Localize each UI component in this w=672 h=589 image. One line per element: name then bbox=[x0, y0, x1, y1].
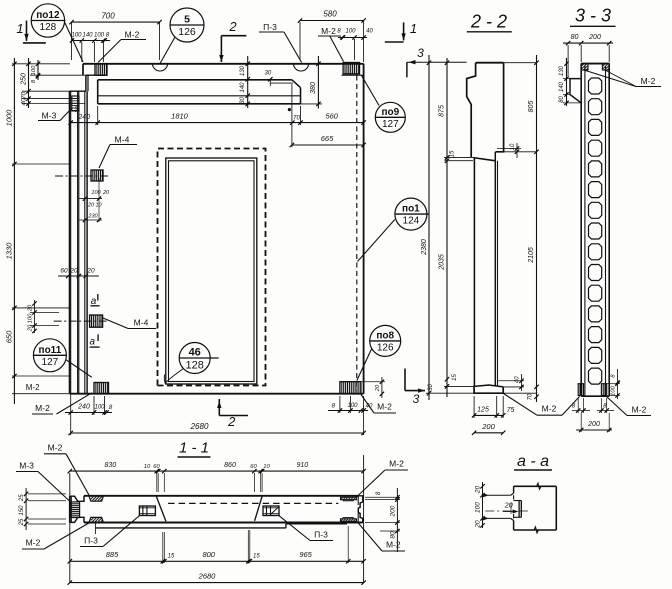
svg-text:M-4: M-4 bbox=[115, 135, 130, 145]
svg-text:70: 70 bbox=[528, 393, 534, 400]
svg-text:П-3: П-3 bbox=[314, 530, 328, 540]
svg-text:a - a: a - a bbox=[517, 453, 549, 470]
svg-text:10: 10 bbox=[263, 464, 270, 470]
svg-text:140: 140 bbox=[559, 81, 565, 92]
svg-text:60: 60 bbox=[250, 464, 257, 470]
svg-text:25: 25 bbox=[19, 518, 25, 526]
svg-text:100: 100 bbox=[345, 29, 356, 35]
svg-text:80: 80 bbox=[559, 96, 565, 103]
svg-text:3 - 3: 3 - 3 bbox=[575, 6, 611, 26]
svg-text:650: 650 bbox=[5, 330, 14, 343]
svg-text:M-4: M-4 bbox=[134, 318, 149, 328]
svg-text:40: 40 bbox=[514, 376, 520, 383]
svg-text:126: 126 bbox=[178, 26, 196, 38]
svg-text:2 - 2: 2 - 2 bbox=[470, 12, 507, 32]
svg-text:M-2: M-2 bbox=[35, 403, 50, 413]
svg-text:700: 700 bbox=[101, 12, 115, 21]
svg-text:15: 15 bbox=[253, 553, 260, 559]
svg-text:70: 70 bbox=[21, 92, 28, 100]
svg-text:M-2: M-2 bbox=[26, 538, 41, 548]
svg-text:1000: 1000 bbox=[5, 109, 14, 127]
svg-text:130: 130 bbox=[559, 65, 565, 76]
svg-text:100: 100 bbox=[475, 502, 482, 513]
svg-text:100: 100 bbox=[31, 65, 37, 75]
svg-text:46: 46 bbox=[189, 347, 201, 359]
svg-text:20: 20 bbox=[475, 486, 482, 495]
svg-text:15: 15 bbox=[452, 374, 458, 381]
svg-text:240: 240 bbox=[77, 404, 90, 411]
svg-text:15: 15 bbox=[450, 150, 456, 157]
svg-text:25: 25 bbox=[19, 494, 25, 502]
svg-text:П-3: П-3 bbox=[84, 536, 98, 546]
svg-text:200: 200 bbox=[389, 505, 396, 517]
svg-text:910: 910 bbox=[296, 462, 308, 469]
svg-text:560: 560 bbox=[325, 112, 338, 121]
svg-text:100: 100 bbox=[94, 33, 105, 39]
svg-text:830: 830 bbox=[104, 462, 116, 469]
svg-text:60: 60 bbox=[60, 268, 68, 275]
svg-text:100: 100 bbox=[347, 403, 358, 409]
svg-text:2680: 2680 bbox=[190, 422, 209, 431]
svg-text:30: 30 bbox=[428, 383, 434, 390]
svg-text:M-2: M-2 bbox=[48, 443, 63, 453]
svg-text:10: 10 bbox=[144, 464, 151, 470]
svg-text:M-3: M-3 bbox=[19, 461, 34, 471]
svg-text:150: 150 bbox=[19, 505, 25, 516]
svg-text:M-2: M-2 bbox=[389, 459, 404, 469]
svg-text:80: 80 bbox=[389, 531, 396, 539]
svg-text:100: 100 bbox=[94, 404, 105, 410]
svg-text:3: 3 bbox=[413, 392, 420, 406]
svg-text:10: 10 bbox=[510, 143, 516, 150]
svg-text:5: 5 bbox=[184, 14, 190, 26]
svg-text:30: 30 bbox=[265, 71, 272, 77]
svg-text:по1: по1 bbox=[402, 204, 420, 215]
svg-text:100: 100 bbox=[91, 190, 101, 196]
svg-text:1330: 1330 bbox=[5, 242, 14, 260]
svg-text:126: 126 bbox=[377, 342, 394, 353]
svg-text:M-2: M-2 bbox=[125, 30, 140, 40]
svg-text:580: 580 bbox=[323, 10, 337, 19]
svg-text:860: 860 bbox=[224, 462, 236, 469]
svg-text:a: a bbox=[90, 337, 96, 348]
svg-text:20: 20 bbox=[475, 520, 482, 529]
svg-text:20: 20 bbox=[102, 190, 110, 196]
svg-text:127: 127 bbox=[382, 119, 399, 130]
svg-text:200: 200 bbox=[587, 421, 600, 428]
svg-text:M-2: M-2 bbox=[386, 540, 401, 550]
svg-text:M-3: M-3 bbox=[42, 111, 57, 121]
svg-text:60: 60 bbox=[153, 464, 160, 470]
svg-text:3: 3 bbox=[417, 46, 424, 60]
svg-text:240: 240 bbox=[77, 114, 90, 121]
svg-text:M-2: M-2 bbox=[632, 405, 647, 415]
svg-text:по12: по12 bbox=[36, 10, 60, 21]
svg-text:1: 1 bbox=[410, 21, 417, 36]
svg-text:по8: по8 bbox=[376, 330, 394, 341]
svg-text:124: 124 bbox=[403, 216, 420, 227]
svg-text:1 - 1: 1 - 1 bbox=[179, 440, 209, 457]
svg-text:80: 80 bbox=[571, 34, 579, 41]
svg-text:805: 805 bbox=[528, 101, 535, 113]
svg-text:M-2: M-2 bbox=[641, 76, 656, 86]
svg-text:885: 885 bbox=[106, 550, 119, 559]
svg-text:230: 230 bbox=[87, 214, 98, 220]
svg-text:30: 30 bbox=[76, 106, 82, 113]
svg-text:40: 40 bbox=[21, 98, 28, 106]
svg-text:200: 200 bbox=[481, 422, 495, 431]
svg-text:2035: 2035 bbox=[439, 254, 446, 271]
svg-text:20: 20 bbox=[69, 268, 78, 275]
svg-text:127: 127 bbox=[42, 357, 59, 368]
svg-text:200: 200 bbox=[588, 34, 601, 41]
svg-text:800: 800 bbox=[202, 550, 215, 559]
svg-text:2380: 2380 bbox=[421, 239, 428, 256]
svg-text:140: 140 bbox=[82, 33, 93, 39]
svg-text:20: 20 bbox=[86, 268, 95, 275]
svg-text:965: 965 bbox=[299, 550, 312, 559]
svg-text:20: 20 bbox=[375, 384, 381, 392]
svg-text:100: 100 bbox=[71, 33, 82, 39]
svg-text:2680: 2680 bbox=[198, 572, 217, 581]
svg-text:M-2: M-2 bbox=[377, 402, 392, 412]
svg-text:20: 20 bbox=[87, 203, 95, 209]
svg-text:2105: 2105 bbox=[528, 247, 535, 264]
svg-text:125: 125 bbox=[477, 407, 489, 414]
svg-text:M-2: M-2 bbox=[321, 26, 336, 36]
svg-text:1: 1 bbox=[16, 21, 23, 36]
svg-text:по9: по9 bbox=[381, 107, 399, 118]
svg-text:1810: 1810 bbox=[171, 112, 189, 121]
svg-text:128: 128 bbox=[40, 22, 57, 33]
svg-text:M-2: M-2 bbox=[542, 404, 557, 414]
svg-text:40: 40 bbox=[366, 29, 373, 35]
svg-text:100: 100 bbox=[611, 385, 617, 395]
svg-text:665: 665 bbox=[321, 134, 334, 143]
svg-text:70: 70 bbox=[293, 115, 300, 121]
svg-text:75: 75 bbox=[507, 407, 515, 414]
svg-text:140: 140 bbox=[240, 82, 246, 93]
svg-text:по11: по11 bbox=[39, 345, 62, 356]
svg-text:128: 128 bbox=[186, 360, 204, 372]
svg-text:130: 130 bbox=[240, 65, 246, 76]
svg-text:875: 875 bbox=[439, 105, 446, 117]
svg-text:15: 15 bbox=[168, 553, 175, 559]
svg-text:250: 250 bbox=[21, 73, 28, 86]
svg-text:2: 2 bbox=[227, 414, 236, 429]
svg-text:П-3: П-3 bbox=[263, 22, 277, 32]
svg-text:380: 380 bbox=[310, 82, 317, 94]
svg-text:2: 2 bbox=[228, 19, 237, 34]
svg-text:30: 30 bbox=[240, 97, 246, 104]
svg-text:M-2: M-2 bbox=[26, 383, 40, 392]
